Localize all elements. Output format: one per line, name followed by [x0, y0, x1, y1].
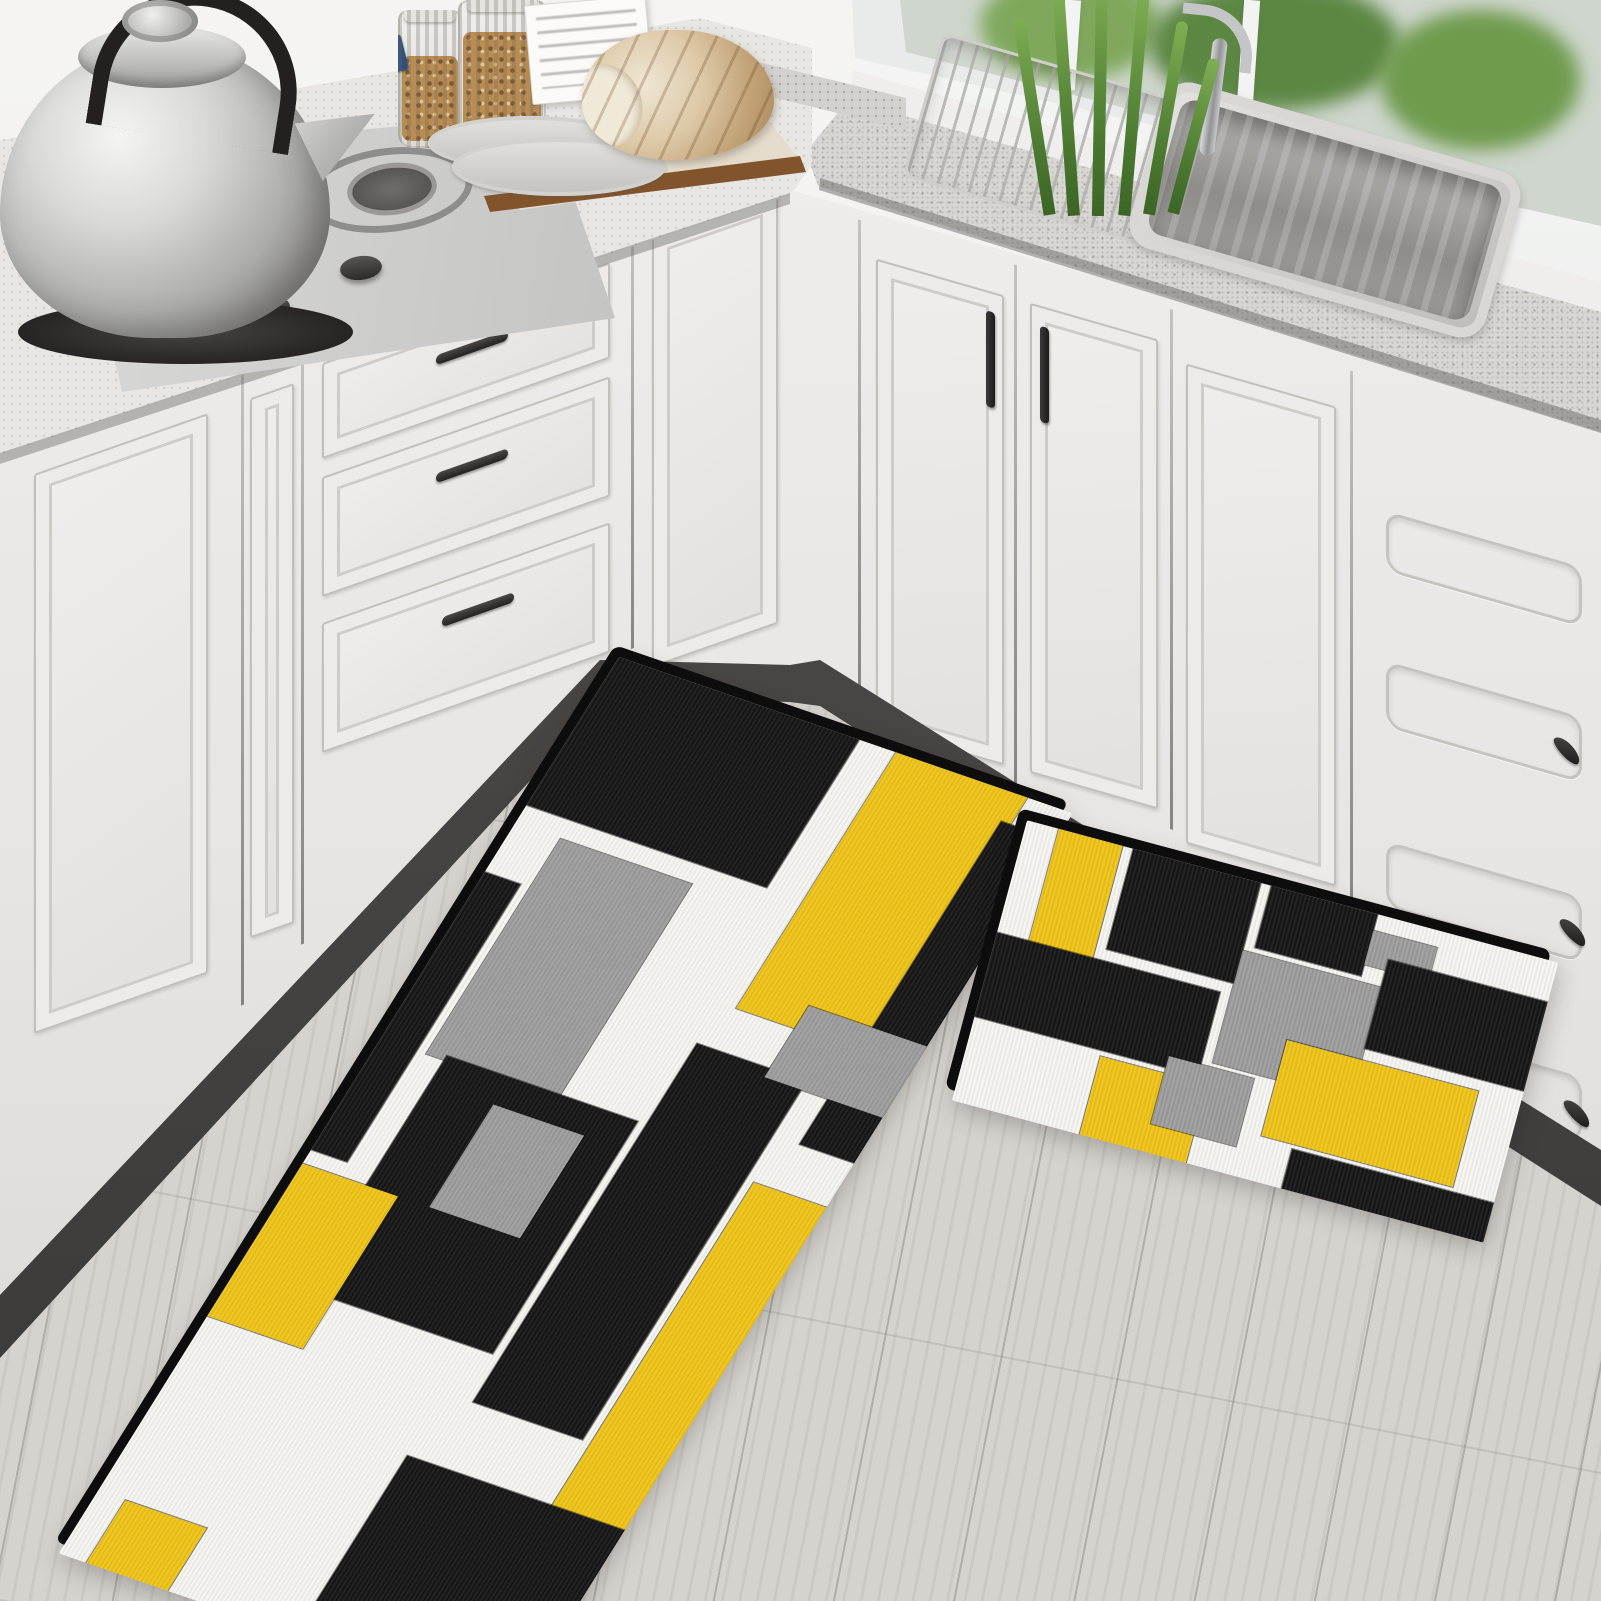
cabinet-gap-line [631, 228, 634, 649]
foliage-blob [1380, 10, 1580, 150]
door-handle [986, 310, 995, 409]
drawer-groove [1386, 661, 1582, 783]
cabinet-gap-line [301, 344, 304, 945]
bread-cut-face [582, 55, 652, 156]
cabinet-door-panel [652, 194, 778, 668]
green-onions [1020, 0, 1240, 216]
bread-loaf [582, 30, 774, 160]
cabinet-door-panel [34, 413, 208, 1034]
jar-tag [398, 34, 409, 74]
mat-block-black [1106, 849, 1261, 984]
cabinet-gap-line [858, 219, 861, 690]
kitchen-scene [0, 0, 1601, 1601]
drawer-groove [1386, 511, 1582, 627]
cabinet-gap-line [1350, 371, 1353, 932]
door-handle [1040, 326, 1049, 425]
cabinet-gap-line [1014, 264, 1017, 785]
green-blade [1092, 0, 1108, 216]
cabinet-gap-line [241, 365, 244, 1006]
jar-lid [404, 10, 455, 22]
cabinet-door-panel [1186, 364, 1336, 887]
kettle-knob [122, 0, 198, 42]
green-blade [1052, 0, 1080, 216]
cabinet-stile-panel [250, 383, 294, 938]
cabinet-door-panel [1030, 303, 1158, 810]
cabinet-gap-line [1170, 309, 1173, 830]
green-blade [1118, 0, 1149, 216]
cabinet-door-panel [876, 259, 1004, 766]
